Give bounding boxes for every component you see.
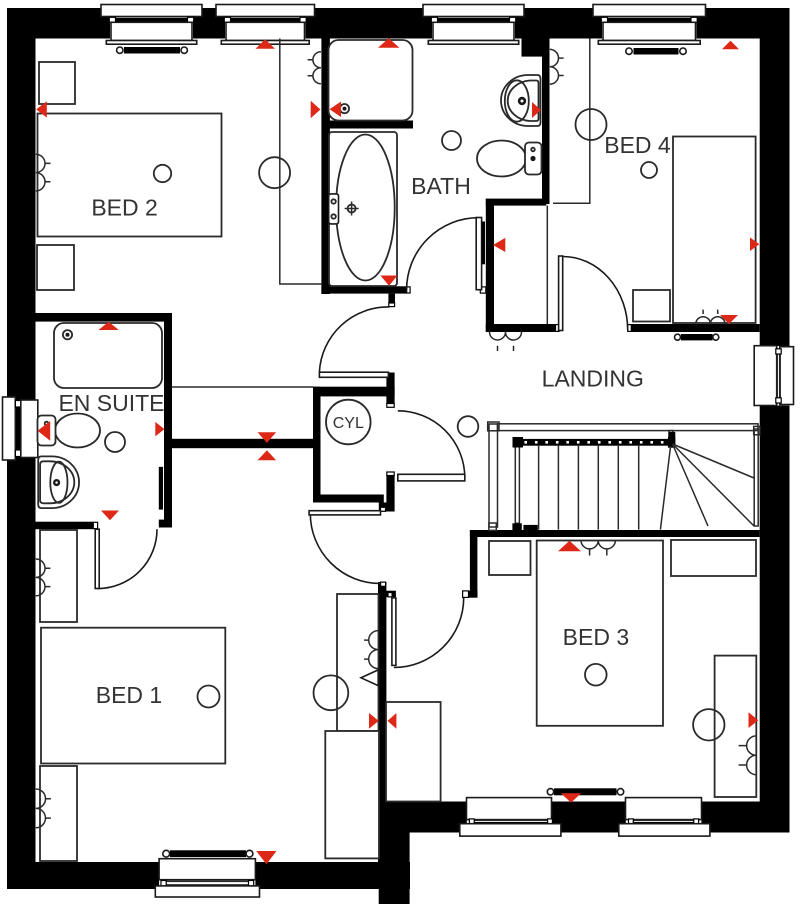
svg-text:EN SUITE: EN SUITE <box>58 390 164 416</box>
svg-text:LANDING: LANDING <box>542 366 644 392</box>
svg-text:CYL: CYL <box>333 415 364 432</box>
svg-text:BED 3: BED 3 <box>563 624 629 650</box>
svg-text:BED 4: BED 4 <box>604 132 671 158</box>
svg-text:BED 2: BED 2 <box>91 195 157 221</box>
svg-text:BATH: BATH <box>411 173 471 199</box>
svg-text:BED 1: BED 1 <box>96 682 162 708</box>
